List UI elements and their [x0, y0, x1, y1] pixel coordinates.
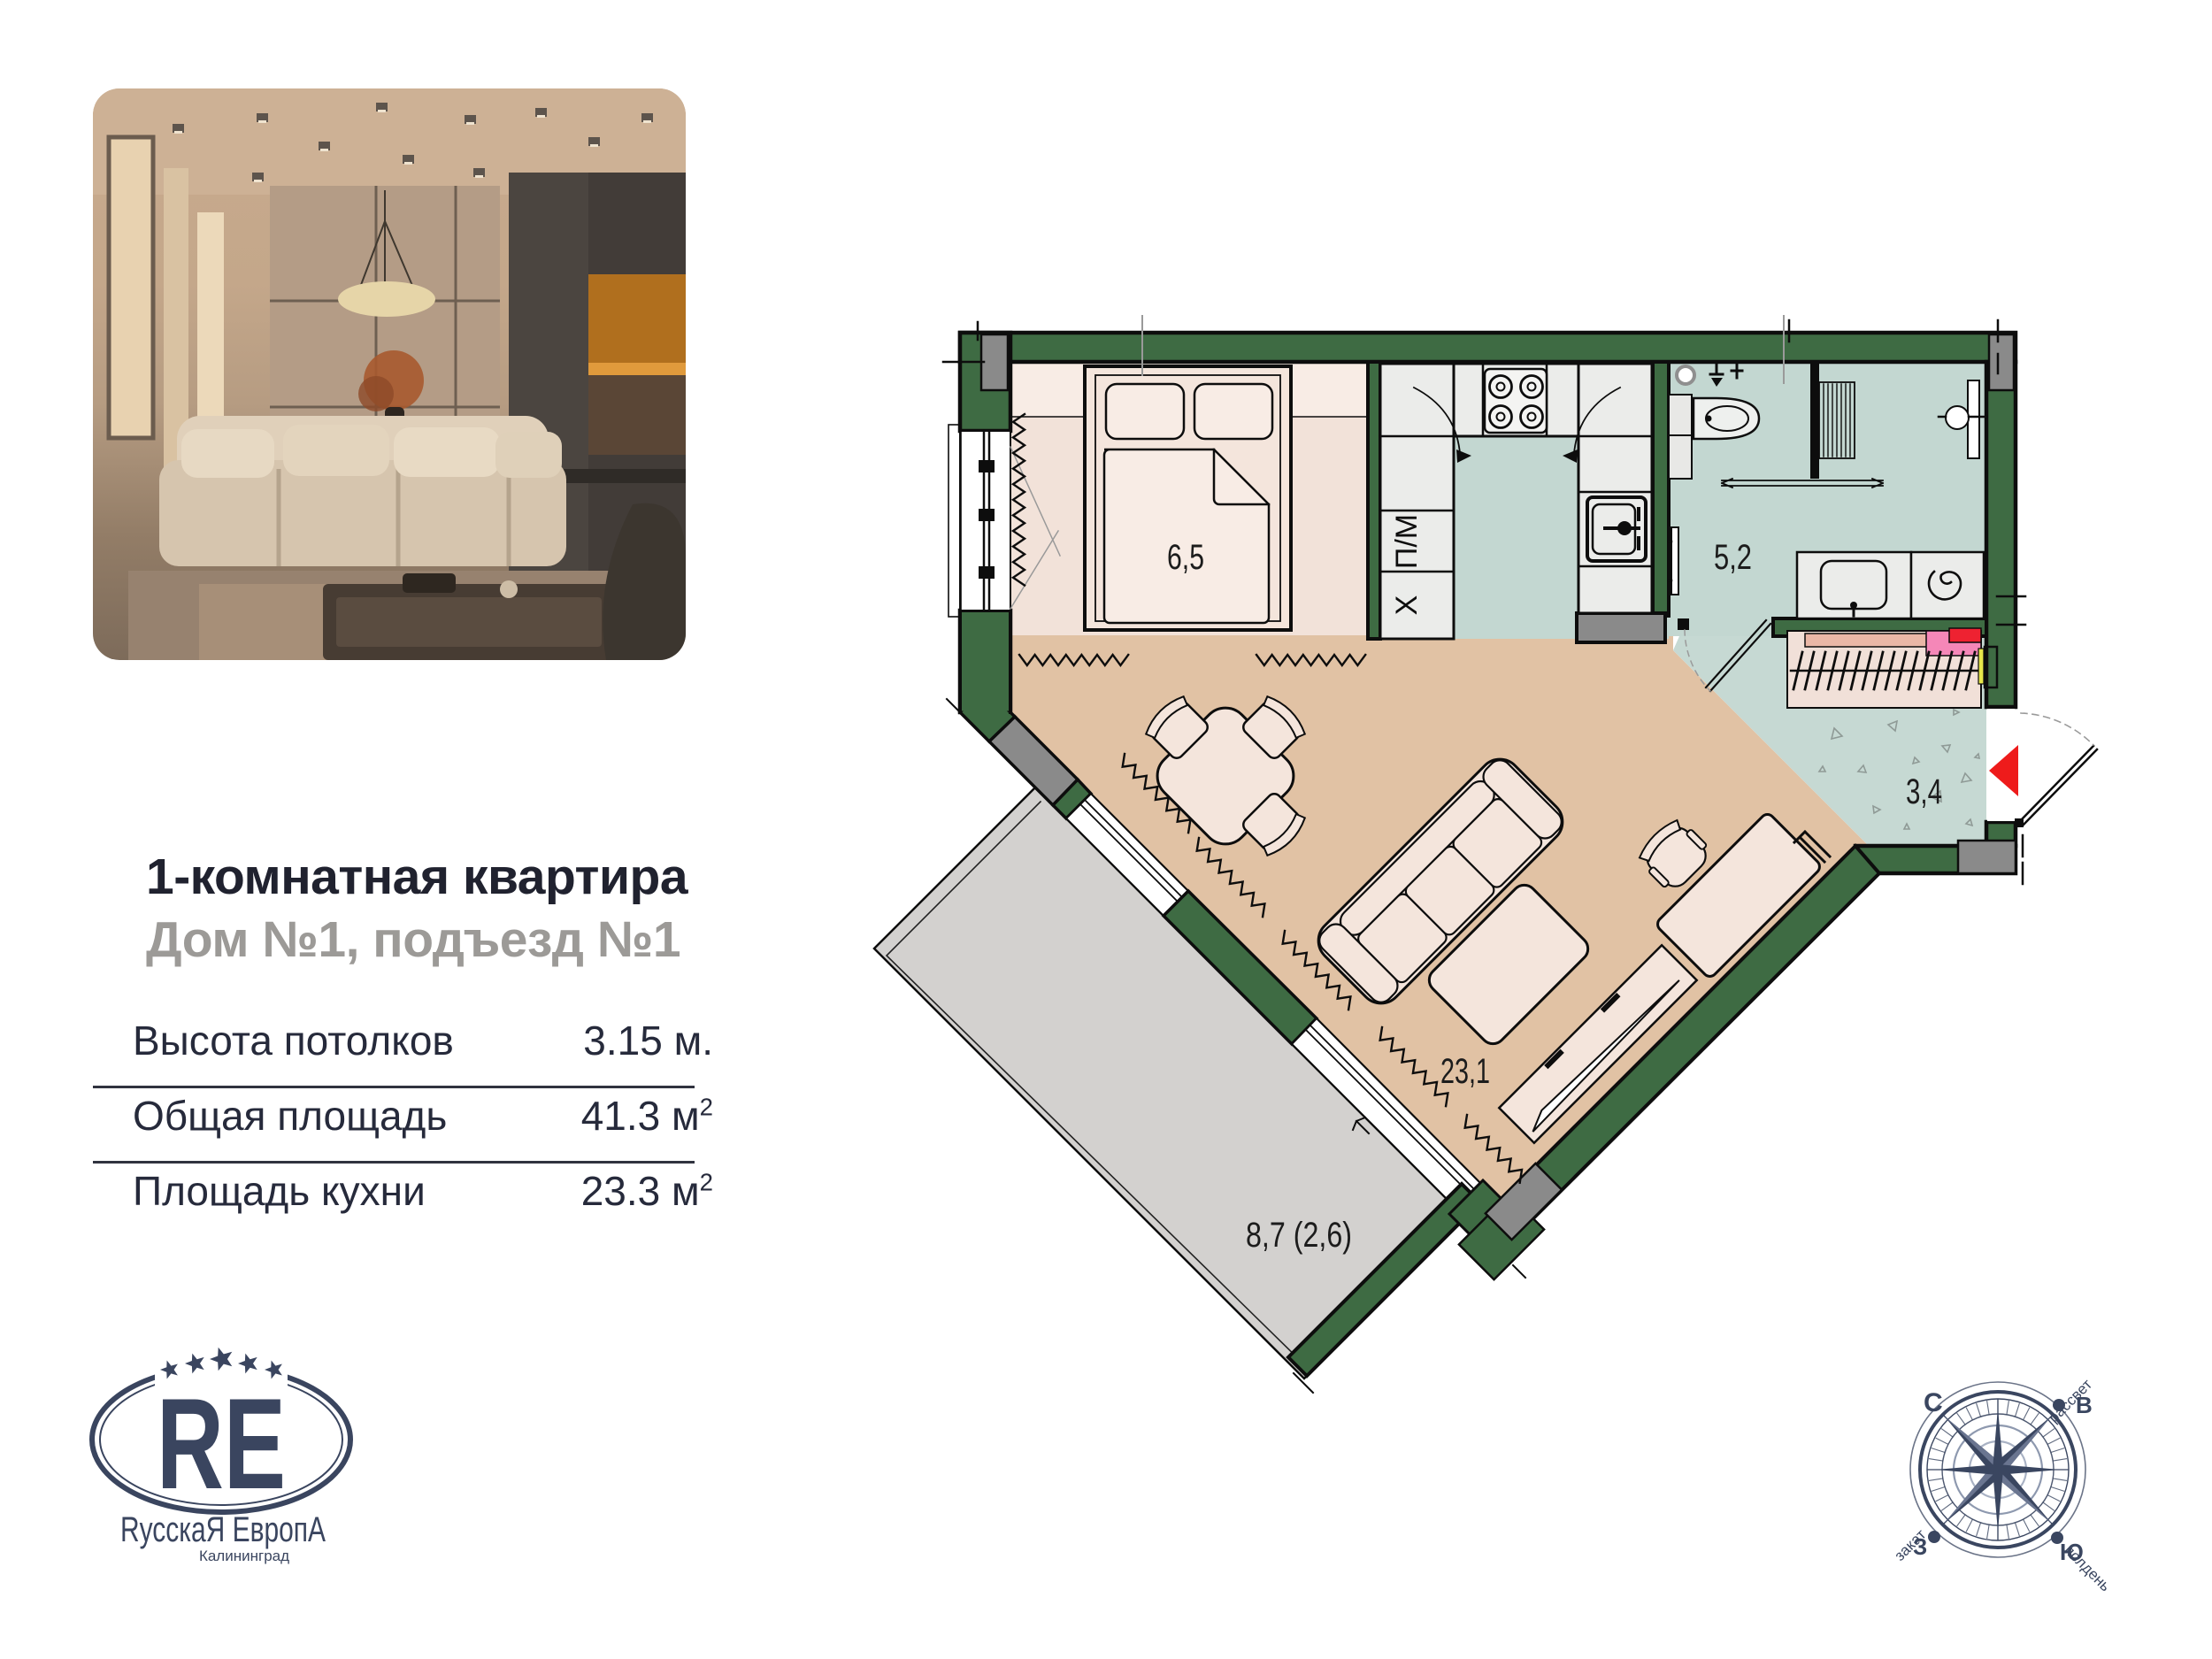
svg-text:С: С: [1924, 1388, 1943, 1417]
svg-text:3,4: 3,4: [1906, 772, 1942, 811]
svg-text:6,5: 6,5: [1167, 538, 1204, 577]
svg-text:23,1: 23,1: [1440, 1052, 1490, 1091]
svg-text:8,7 (2,6): 8,7 (2,6): [1246, 1216, 1352, 1255]
svg-text:полдень: полдень: [2061, 1541, 2114, 1594]
svg-text:П/М: П/М: [1390, 514, 1424, 569]
svg-text:5,2: 5,2: [1714, 538, 1752, 577]
svg-text:X: X: [1390, 595, 1424, 616]
